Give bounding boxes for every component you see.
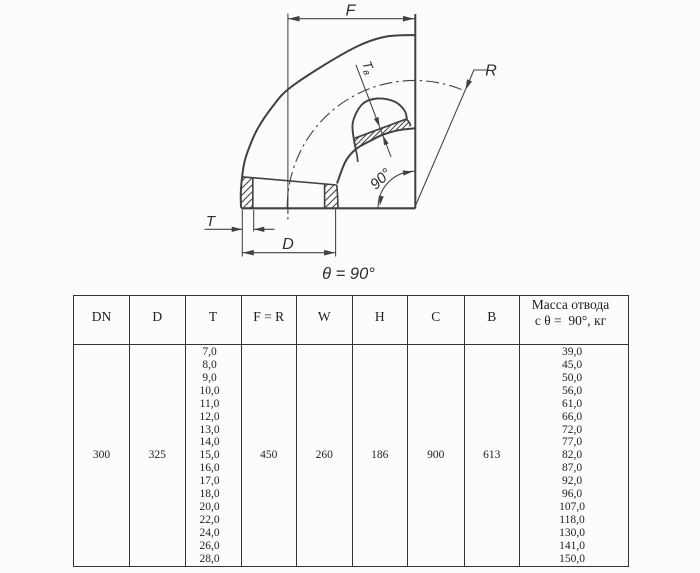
svg-text:R: R — [485, 63, 497, 80]
svg-text:D: D — [282, 236, 294, 253]
svg-text:90°: 90° — [367, 165, 395, 193]
svg-text:T: T — [206, 213, 217, 230]
svg-text:Tв: Tв — [357, 59, 378, 77]
svg-text:F: F — [346, 3, 357, 20]
svg-text:θ = 90°: θ = 90° — [322, 265, 375, 283]
